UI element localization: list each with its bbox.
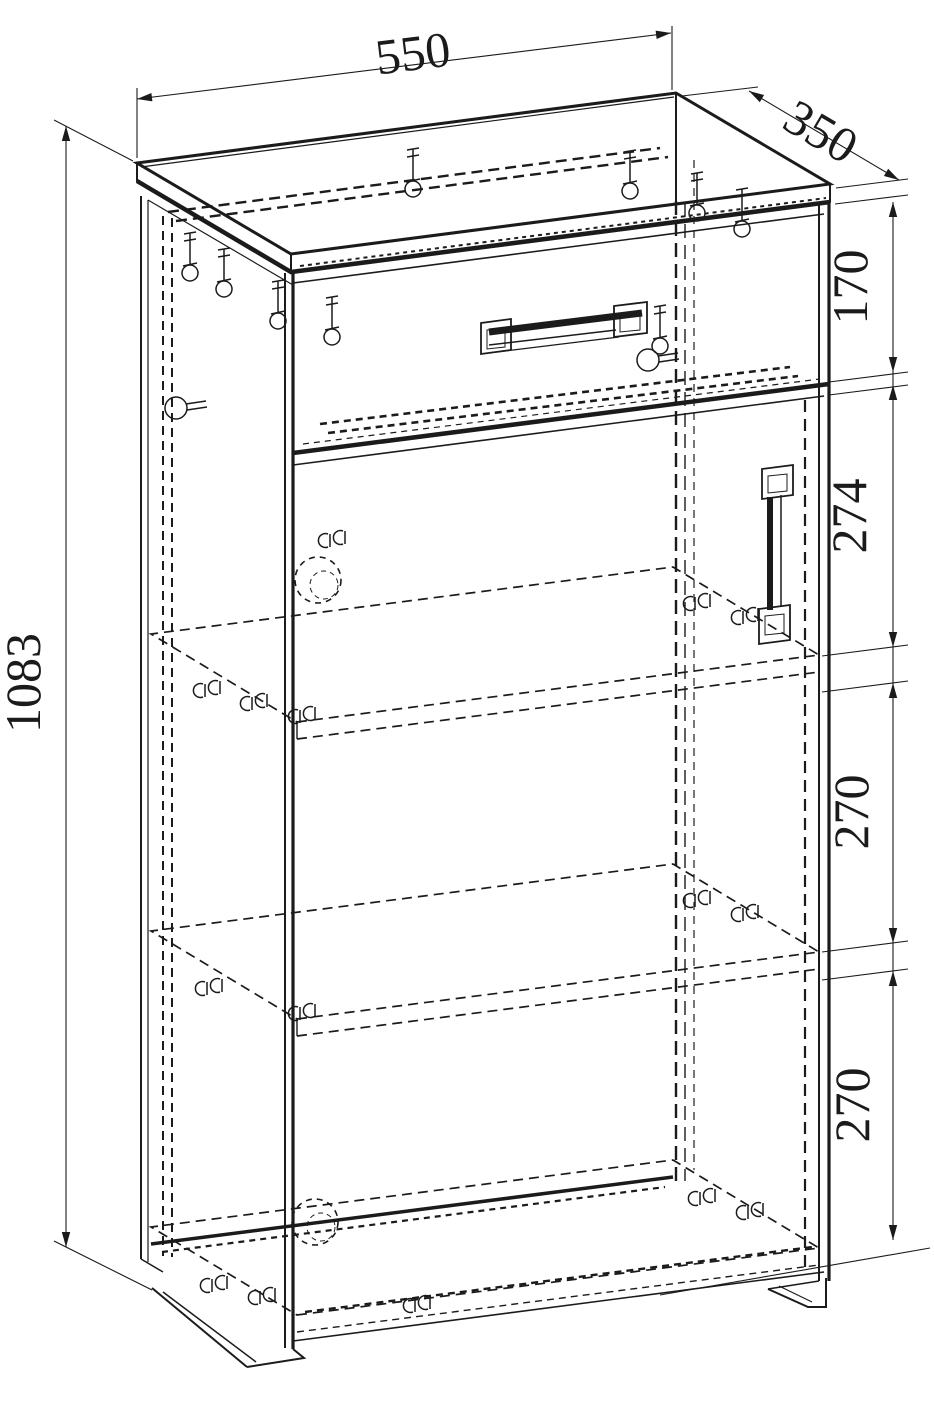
arrowhead [889,202,897,217]
arrowhead [889,357,897,372]
dimension-sections: 170 274 270 270 [660,195,930,1295]
extension-line [829,385,908,395]
screw-fitting-icon [216,248,232,297]
extension-line [822,941,908,952]
drawer-handle-right-foot [614,302,647,337]
arrowhead [889,928,897,943]
cam-fitting-icon [200,1276,227,1293]
shelf-2-ends [297,952,819,1036]
door-hinge-cup-top-inner [310,571,338,599]
bottom-panel [151,1160,819,1332]
left-foot-diagonal [152,1288,247,1367]
drawer-handle [481,302,647,354]
drawer-handle-bar-bottom [497,337,619,352]
door-handle-top-foot [762,465,793,499]
cam-fitting-icon [240,694,267,711]
screw-fitting-icon [622,150,638,199]
top-panel-front-band [291,184,830,272]
dimension-width: 550 [136,21,672,158]
door-hinge-cup-bottom-inner [307,1213,335,1241]
screw-fitting-icon [652,305,668,354]
cabinet-technical-drawing: 550 350 1083 [0,0,934,1406]
door-handle [759,465,793,644]
shelf-1-top-face [151,567,819,722]
drawing-canvas: 550 350 1083 [0,0,934,1406]
extension-line [835,195,908,204]
drawer-bottom-hidden [303,379,820,444]
door-handle-top-foot-inner [768,474,787,493]
dimension-section-top-label: 274 [821,479,877,554]
top-panel-left-band [137,163,291,272]
left-panel-bottom-back [141,1259,163,1272]
extension-line [822,681,908,692]
cabinet [137,93,830,1367]
screw-fitting-icon [270,280,286,329]
screw-fitting-icon [182,232,198,281]
right-foot-top [768,1281,819,1289]
extension-line [822,645,908,656]
drawer-handle-bar [489,313,642,332]
arrowhead [656,29,672,39]
arrowhead [136,93,152,103]
cam-fitting-icon [318,531,345,548]
dimension-section-bottom-label: 270 [824,1068,880,1143]
bottom-panel-back-edge [151,1177,673,1244]
shelf-2-top-face [151,864,819,1019]
extension-line [54,1241,152,1290]
extension-line [660,1248,930,1295]
top-panel [137,93,830,272]
left-foot-diagonal-2 [163,1292,256,1362]
left-side-panel [141,196,304,1367]
drawer-front [293,214,829,453]
right-foot-inner [779,1286,812,1302]
door-handle-bottom-foot [759,605,790,644]
dimension-height-label: 1083 [0,633,51,733]
top-panel-texture [300,198,826,266]
dimension-drawer-label: 170 [822,250,878,325]
extension-line [682,87,758,96]
drawer-top-edge [293,214,824,283]
drawer-dowel-row-1 [320,367,790,424]
back-panel-top-edge-2 [176,157,668,221]
arrowhead [62,1232,70,1247]
left-foot-bottom [247,1349,304,1367]
cam-lock-icon [637,349,679,371]
dimension-depth-label: 350 [774,88,867,174]
door-hinge-cup-top [295,557,341,603]
shelf-1 [151,567,819,739]
cam-fitting-icon [688,1189,715,1206]
cam-fitting-icon [193,681,220,698]
door-bottom-edge [293,1272,824,1341]
dimension-width-label: 550 [372,21,453,86]
arrowhead [889,632,897,647]
shelf-1-ends [297,655,819,739]
shelf-2 [151,864,819,1036]
cam-fitting-icon [248,1288,275,1305]
extension-line [822,969,908,980]
screw-fitting-icon [324,296,340,345]
screw-fitting-icon [689,172,705,221]
drawer-handle-left-foot [481,319,511,354]
shelf-1-front-thickness [297,672,819,739]
extension-line [836,179,908,188]
cam-fitting-icon [683,891,710,908]
dimension-height: 1083 [0,120,152,1290]
right-foot [768,1278,826,1307]
fasteners [165,148,763,1313]
arrowhead [889,1225,897,1240]
cam-fitting-icon [683,594,710,611]
bottom-panel-back-dowels [162,1187,665,1252]
extension-line [829,372,908,382]
shelf-2-front-thickness [297,969,819,1036]
bottom-panel-thickness [297,1265,819,1332]
drawer-dowel-row-2 [328,376,798,433]
bottom-panel-dowel-row [305,1247,812,1312]
dimension-section-middle-label: 270 [823,775,879,850]
cam-fitting-icon [195,979,222,996]
arrowhead [747,87,764,102]
dimension-depth: 350 [682,87,908,188]
arrowhead [889,683,897,698]
arrowhead [889,971,897,986]
